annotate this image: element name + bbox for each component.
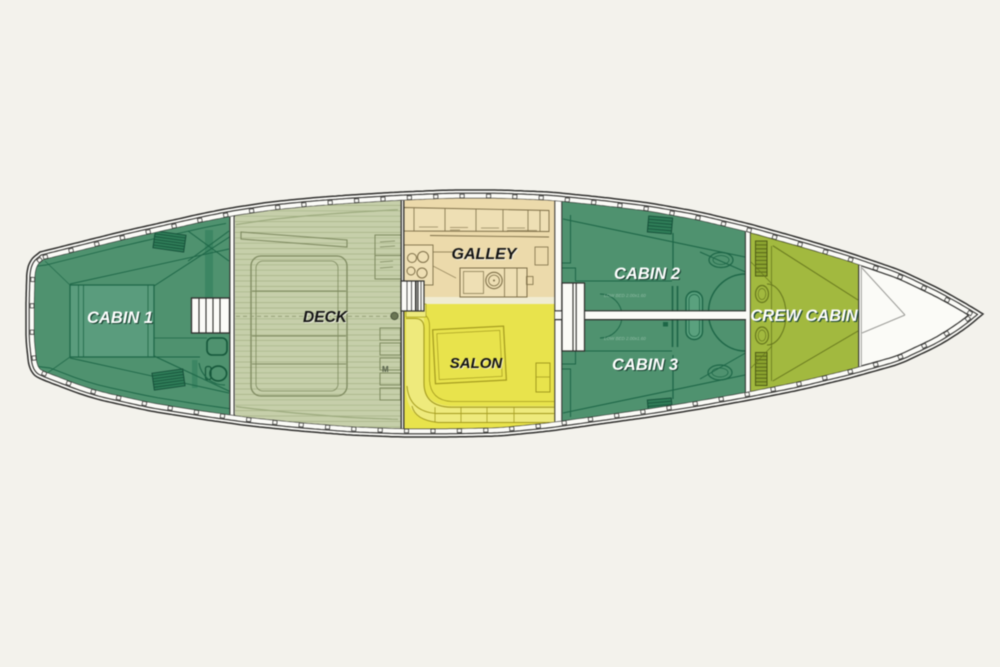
svg-text:CREW CABIN: CREW CABIN: [750, 307, 858, 325]
svg-text:LOW BED 2.00x1.60: LOW BED 2.00x1.60: [604, 336, 646, 341]
svg-text:CABIN 2: CABIN 2: [614, 265, 680, 283]
svg-text:SALON: SALON: [450, 355, 504, 372]
svg-text:CABIN 1: CABIN 1: [87, 309, 153, 327]
svg-text:LOW BED 2.00x1.60: LOW BED 2.00x1.60: [604, 293, 646, 298]
svg-text:M: M: [382, 365, 389, 374]
svg-text:GALLEY: GALLEY: [452, 246, 518, 263]
svg-text:DECK: DECK: [303, 309, 349, 326]
svg-text:CABIN 3: CABIN 3: [612, 356, 678, 374]
